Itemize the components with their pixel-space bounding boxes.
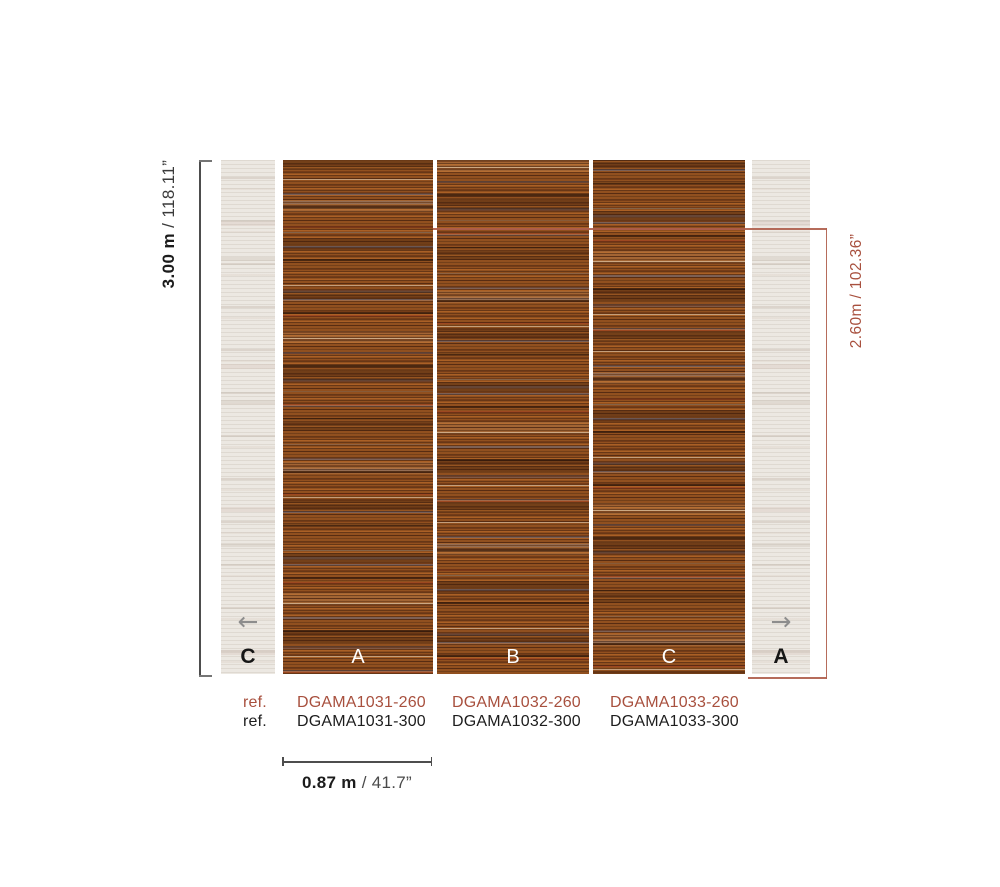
height-260-bracket-vline — [826, 228, 828, 679]
diagram-canvas: 3.00 m / 118.11” ← C A B C → A 2.60m / 1… — [0, 0, 1000, 887]
width-dimension-tick-left — [282, 757, 284, 766]
panel-side-right-letter: A — [752, 647, 810, 667]
height-3m-bracket-tick-top — [199, 160, 212, 162]
strip-c-letter: C — [593, 647, 745, 667]
ref-260-item-1: DGAMA1032-260 — [452, 694, 581, 712]
width-inches: / 41.7” — [357, 773, 412, 792]
strip-a: A — [283, 160, 433, 674]
height-3m-bracket-line — [199, 160, 201, 677]
strip-c: C — [593, 160, 745, 674]
height-260-bracket-bline — [748, 677, 827, 679]
height-3m-inches: / 118.11” — [159, 160, 178, 233]
ref-300-item-1: DGAMA1032-300 — [452, 713, 581, 731]
left-arrow-icon: ← — [221, 609, 275, 634]
cut-height-260-line — [433, 228, 827, 230]
height-3m-value: 3.00 m — [159, 233, 178, 288]
ref-260-item-0: DGAMA1031-260 — [297, 694, 426, 712]
right-arrow-icon: → — [752, 609, 810, 634]
width-dimension-tick-right — [431, 757, 433, 766]
ref-300-item-0: DGAMA1031-300 — [297, 713, 426, 731]
strip-b-letter: B — [437, 647, 589, 667]
ref-300-item-2: DGAMA1033-300 — [610, 713, 739, 731]
width-dimension-line — [282, 761, 432, 763]
width-value: 0.87 m — [302, 773, 357, 792]
strip-a-letter: A — [283, 647, 433, 667]
height-3m-bracket-tick-bottom — [199, 675, 212, 677]
panel-side-left: ← C — [221, 160, 275, 674]
panel-side-left-letter: C — [221, 647, 275, 667]
ref-300-prefix: ref. — [243, 713, 267, 731]
ref-260-prefix: ref. — [243, 694, 267, 712]
height-3m-dimension-label: 3.00 m / 118.11” — [159, 160, 179, 289]
ref-260-item-2: DGAMA1033-260 — [610, 694, 739, 712]
width-dimension-label: 0.87 m / 41.7” — [257, 773, 457, 793]
height-260-dimension-label: 2.60m / 102.36” — [848, 234, 866, 349]
panel-side-right: → A — [752, 160, 810, 674]
strip-b: B — [437, 160, 589, 674]
